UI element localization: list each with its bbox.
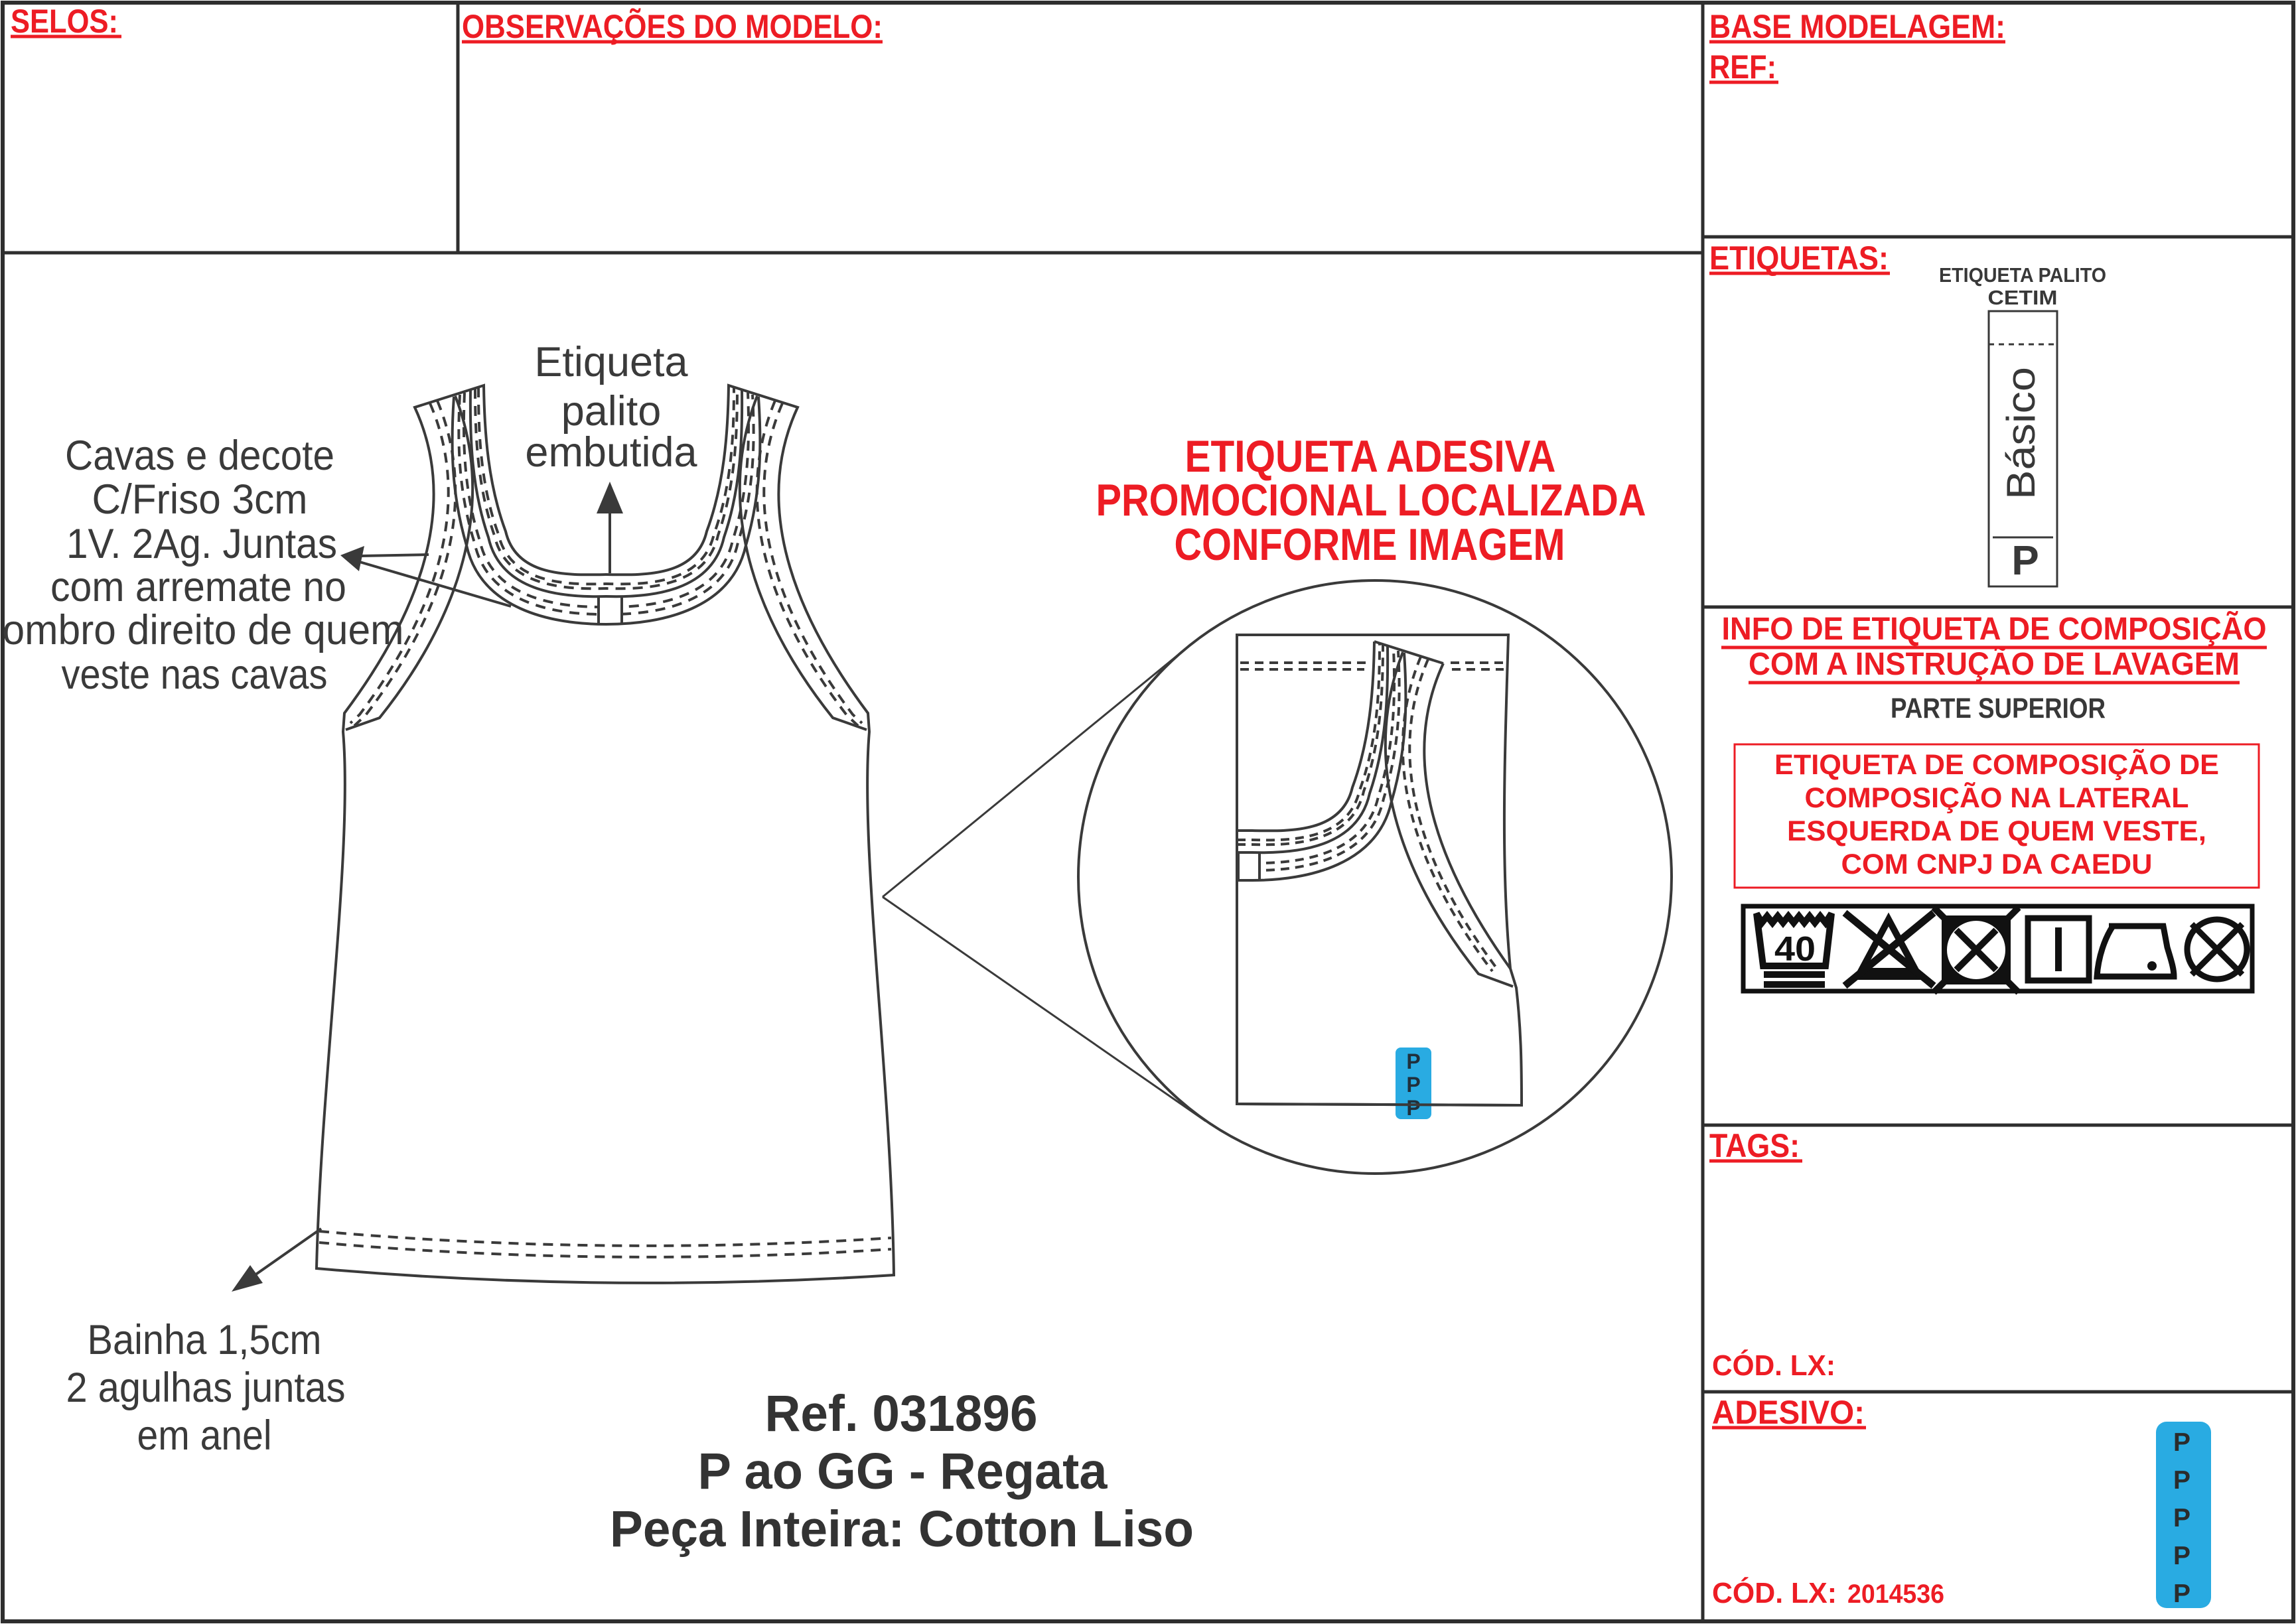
svg-text:ESQUERDA DE QUEM VESTE,: ESQUERDA DE QUEM VESTE, xyxy=(1787,815,2206,847)
svg-text:P: P xyxy=(2011,538,2039,584)
svg-text:veste nas cavas: veste nas cavas xyxy=(62,651,328,698)
svg-text:ombro direito de quem: ombro direito de quem xyxy=(3,607,404,653)
svg-text:CONFORME IMAGEM: CONFORME IMAGEM xyxy=(1175,519,1565,570)
svg-text:SELOS:: SELOS: xyxy=(11,3,118,40)
svg-text:Etiqueta: Etiqueta xyxy=(534,339,688,385)
svg-text:INFO DE ETIQUETA DE COMPOSIÇÃO: INFO DE ETIQUETA DE COMPOSIÇÃO xyxy=(1722,610,2267,647)
svg-text:ETIQUETA ADESIVA: ETIQUETA ADESIVA xyxy=(1185,431,1556,482)
svg-text:40: 40 xyxy=(1774,930,1816,969)
svg-text:P ao GG - Regata: P ao GG - Regata xyxy=(698,1443,1108,1500)
svg-text:COM CNPJ DA CAEDU: COM CNPJ DA CAEDU xyxy=(1841,848,2153,880)
svg-text:2 agulhas juntas: 2 agulhas juntas xyxy=(66,1365,346,1411)
svg-text:Bainha 1,5cm: Bainha 1,5cm xyxy=(88,1317,322,1363)
svg-text:P: P xyxy=(2173,1428,2190,1457)
svg-text:P: P xyxy=(1406,1049,1420,1073)
svg-text:ADESIVO:: ADESIVO: xyxy=(1712,1394,1865,1431)
svg-text:1V. 2Ag. Juntas: 1V. 2Ag. Juntas xyxy=(66,521,337,567)
svg-text:com arremate no: com arremate no xyxy=(50,564,346,610)
svg-text:2014536: 2014536 xyxy=(1847,1580,1944,1609)
svg-text:PARTE SUPERIOR: PARTE SUPERIOR xyxy=(1891,693,2106,724)
svg-text:P: P xyxy=(2173,1542,2190,1570)
svg-text:em anel: em anel xyxy=(137,1412,272,1459)
svg-text:P: P xyxy=(2173,1580,2190,1608)
svg-text:ETIQUETA PALITO: ETIQUETA PALITO xyxy=(1939,263,2106,287)
svg-text:Peça Inteira: Cotton Liso: Peça Inteira: Cotton Liso xyxy=(610,1501,1194,1558)
svg-text:CÓD. LX:: CÓD. LX: xyxy=(1712,1349,1835,1382)
svg-text:Cavas e decote: Cavas e decote xyxy=(65,433,334,479)
svg-text:P: P xyxy=(1406,1096,1420,1120)
svg-text:PROMOCIONAL LOCALIZADA: PROMOCIONAL LOCALIZADA xyxy=(1096,475,1646,525)
svg-text:COMPOSIÇÃO NA LATERAL: COMPOSIÇÃO NA LATERAL xyxy=(1805,782,2189,814)
svg-text:Ref. 031896: Ref. 031896 xyxy=(765,1385,1038,1442)
svg-text:CÓD. LX:: CÓD. LX: xyxy=(1712,1576,1837,1609)
svg-text:ETIQUETAS:: ETIQUETAS: xyxy=(1709,239,1889,277)
svg-text:P: P xyxy=(2173,1504,2190,1532)
svg-text:palito: palito xyxy=(561,388,662,435)
svg-text:TAGS:: TAGS: xyxy=(1709,1127,1800,1164)
svg-text:P: P xyxy=(1406,1073,1420,1097)
svg-text:REF:: REF: xyxy=(1709,48,1776,86)
svg-text:P: P xyxy=(2173,1466,2190,1495)
svg-text:ETIQUETA DE COMPOSIÇÃO DE: ETIQUETA DE COMPOSIÇÃO DE xyxy=(1774,749,2219,781)
svg-text:C/Friso 3cm: C/Friso 3cm xyxy=(92,476,308,523)
svg-text:CETIM: CETIM xyxy=(1988,286,2058,309)
svg-text:Básico: Básico xyxy=(1999,367,2043,500)
svg-text:embutida: embutida xyxy=(525,429,697,476)
svg-text:BASE MODELAGEM:: BASE MODELAGEM: xyxy=(1709,8,2005,45)
svg-text:COM A INSTRUÇÃO DE LAVAGEM: COM A INSTRUÇÃO DE LAVAGEM xyxy=(1749,645,2240,682)
svg-text:OBSERVAÇÕES DO MODELO:: OBSERVAÇÕES DO MODELO: xyxy=(462,7,883,45)
